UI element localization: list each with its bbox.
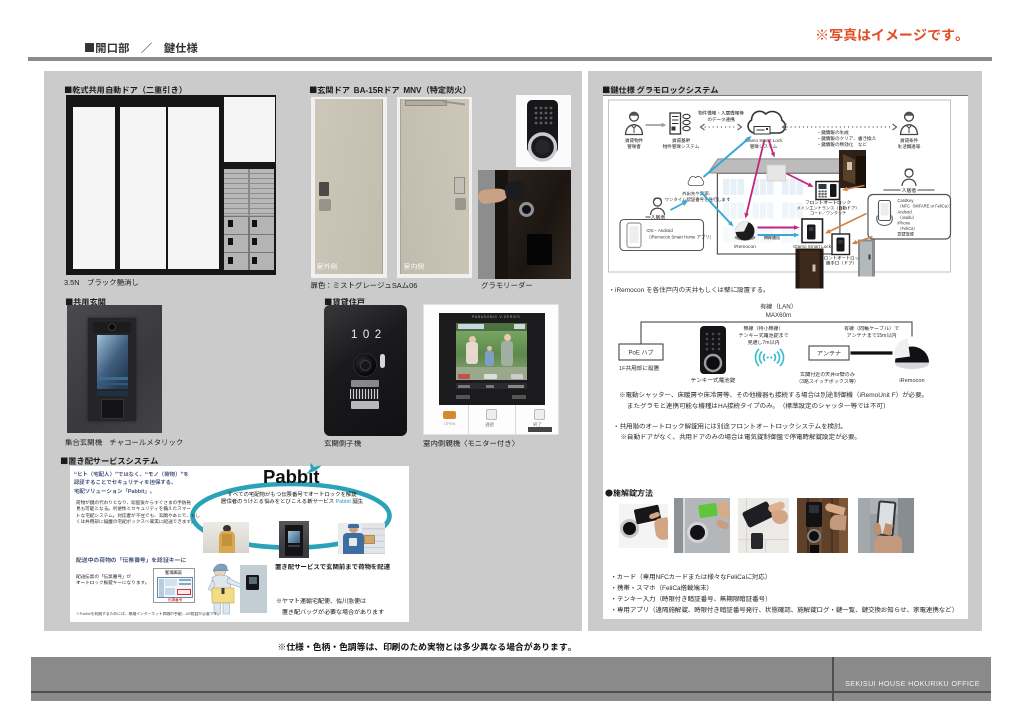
svg-text:（FeliCa）: （FeliCa） bbox=[897, 226, 917, 231]
svg-text:有線（LAN）: 有線（LAN） bbox=[760, 301, 797, 310]
svg-text:無線通信: 無線通信 bbox=[763, 235, 780, 241]
svg-text:物件管理システム: 物件管理システム bbox=[662, 143, 699, 150]
svg-text:有線（同軸ケーブル）で: 有線（同軸ケーブル）で bbox=[842, 325, 898, 332]
svg-text:Glamo Smart Lock: Glamo Smart Lock bbox=[792, 244, 831, 249]
svg-text:認証登録: 認証登録 bbox=[897, 231, 913, 237]
svg-text:賃貸基幹: 賃貸基幹 bbox=[671, 137, 690, 144]
svg-text:管理者: 管理者 bbox=[627, 143, 641, 150]
svg-text:コード／ワンタッチ: コード／ワンタッチ bbox=[810, 210, 846, 216]
svg-text:のデータ連携: のデータ連携 bbox=[707, 117, 735, 123]
svg-text:・iRemocon を各住戸内の天井もしくは壁に設置する。: ・iRemocon を各住戸内の天井もしくは壁に設置する。 bbox=[608, 284, 769, 294]
svg-text:アンテナまで15m以内: アンテナまで15m以内 bbox=[846, 332, 896, 339]
svg-text:iRemocon: iRemocon bbox=[899, 378, 924, 384]
svg-text:・共用階のオートロック解錠用には別途フロントオートロックシス: ・共用階のオートロック解錠用には別途フロントオートロックシステムを検討。 bbox=[613, 420, 847, 430]
svg-text:Android: Android bbox=[897, 209, 912, 214]
svg-text:iRemocon: iRemocon bbox=[734, 244, 756, 250]
svg-text:※自動ドアがなく、共用ドアのみの場合は電気錠制御盤で停電時解: ※自動ドアがなく、共用ドアのみの場合は電気錠制御盤で停電時解錠設定が必要。 bbox=[620, 431, 861, 441]
svg-text:ワンタイム認証番号を発行します: ワンタイム認証番号を発行します bbox=[664, 197, 730, 203]
svg-text:※電動シャッター、床暖房や床冷房等、その他機器も接続する場合: ※電動シャッター、床暖房や床冷房等、その他機器も接続する場合は別途制御機（iRe… bbox=[619, 389, 928, 399]
svg-text:（osaifu）: （osaifu） bbox=[897, 215, 916, 220]
svg-text:MAX60m: MAX60m bbox=[765, 312, 790, 319]
svg-text:CardKey: CardKey bbox=[897, 198, 914, 203]
svg-text:テンキー式電池錠: テンキー式電池錠 bbox=[690, 376, 735, 384]
svg-text:・鍵情報の無効化 など: ・鍵情報の無効化 など bbox=[816, 141, 867, 148]
svg-text:見通し7m以内: 見通し7m以内 bbox=[747, 339, 779, 346]
svg-text:1F共用部に設置: 1F共用部に設置 bbox=[619, 364, 660, 372]
svg-text:・鍵情報の生成: ・鍵情報の生成 bbox=[816, 129, 849, 136]
svg-text:賃貸条件: 賃貸条件 bbox=[899, 137, 918, 144]
svg-text:無線（特小無線）: 無線（特小無線） bbox=[743, 325, 783, 332]
svg-text:（NFC（MIFARE or FeliCa））: （NFC（MIFARE or FeliCa）） bbox=[897, 203, 953, 208]
svg-text:アンテナ: アンテナ bbox=[816, 348, 840, 357]
svg-text:入居者: 入居者 bbox=[901, 187, 916, 194]
svg-text:玄関付近の天井or壁のみ: 玄関付近の天井or壁のみ bbox=[800, 371, 855, 378]
svg-text:またグラモと連携可能な機種はHA接続タイプのみ。（標準設定の: またグラモと連携可能な機種はHA接続タイプのみ。（標準設定のシャッター等では不可… bbox=[627, 400, 890, 410]
svg-text:（3路スイッチボックス等）: （3路スイッチボックス等） bbox=[796, 378, 859, 385]
svg-text:テンキー式電池錠まで: テンキー式電池錠まで bbox=[738, 332, 788, 339]
svg-text:勝手口（ドア）: 勝手口（ドア） bbox=[825, 260, 857, 266]
svg-text:iPhone: iPhone bbox=[897, 220, 910, 225]
svg-text:iOS・Android: iOS・Android bbox=[646, 228, 673, 233]
svg-text:物件情報・入居情報等: 物件情報・入居情報等 bbox=[698, 109, 744, 116]
svg-text:・鍵情報のクリア、書き換え: ・鍵情報のクリア、書き換え bbox=[816, 135, 876, 142]
svg-text:生活関連等: 生活関連等 bbox=[897, 144, 920, 150]
svg-text:賃貸物件: 賃貸物件 bbox=[624, 137, 643, 144]
